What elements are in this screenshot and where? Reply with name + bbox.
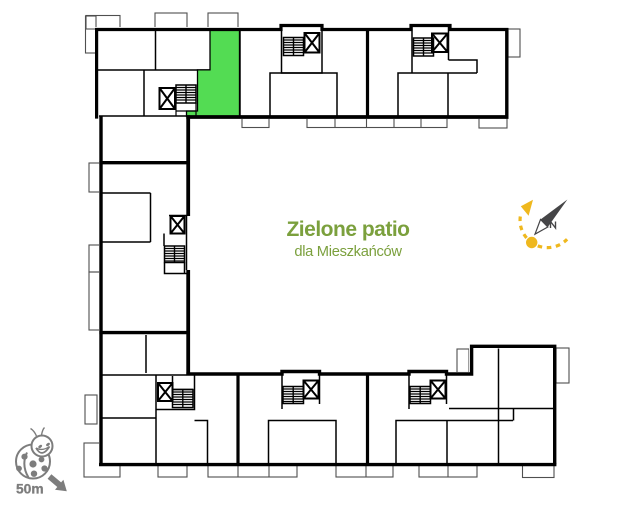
svg-text:Zielone patio: Zielone patio: [286, 218, 409, 241]
svg-text:dla Mieszkańców: dla Mieszkańców: [294, 244, 402, 260]
svg-text:50m: 50m: [16, 481, 44, 496]
